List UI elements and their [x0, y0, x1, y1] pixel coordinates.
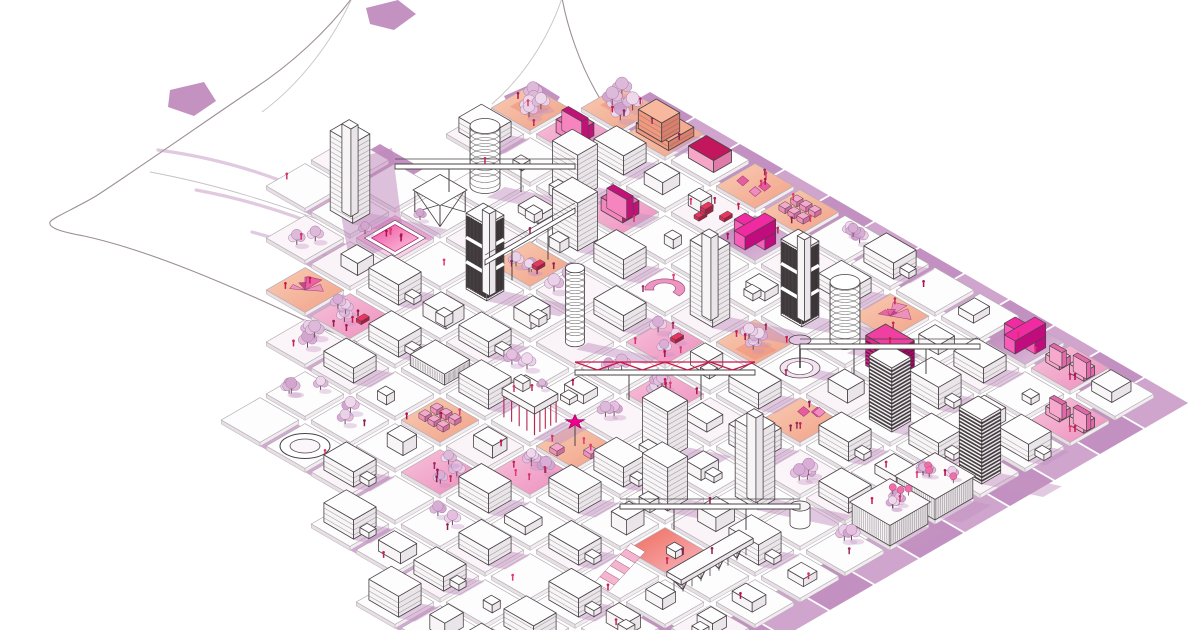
tower-cap: [482, 206, 496, 296]
dark-striped-tower: [869, 344, 910, 432]
tower-cap: [702, 229, 718, 321]
ring-inner: [290, 439, 320, 453]
bridge-deck: [575, 370, 755, 375]
barcode-striped-tower: [781, 229, 819, 327]
mountain-rock-patch: [168, 82, 216, 116]
parasol: [926, 467, 933, 474]
ribbed-cylinder-tower: [470, 119, 500, 194]
tower: [735, 409, 775, 510]
parasol: [950, 473, 957, 480]
slim-cylinder-tower: [566, 263, 585, 347]
midrise-building: [639, 442, 687, 513]
tower-cap: [747, 409, 763, 503]
bridge-deck: [620, 504, 800, 509]
bridge-deck: [395, 164, 575, 169]
slim-cylinder-tower: [566, 263, 585, 347]
parasol: [889, 484, 896, 491]
tower-cap: [342, 120, 358, 217]
bridge-deck: [800, 344, 980, 349]
tower-cap: [797, 232, 811, 322]
ribbed-cylinder-tower: [830, 275, 860, 350]
tower: [690, 229, 730, 328]
parasol: [905, 485, 912, 492]
midrise-building: [549, 177, 597, 253]
tower: [330, 120, 370, 224]
parasol: [897, 486, 904, 493]
ribbed-cylinder-tower: [470, 119, 500, 194]
ring-pavilion: [280, 434, 330, 459]
dish: [789, 335, 811, 345]
ribbed-cylinder-tower: [830, 275, 860, 350]
illustration-canvas: [0, 0, 1200, 630]
magenta-cross-pavilion: [1004, 317, 1045, 354]
isometric-city-illustration: [0, 0, 1200, 630]
dark-striped-tower: [869, 344, 910, 432]
